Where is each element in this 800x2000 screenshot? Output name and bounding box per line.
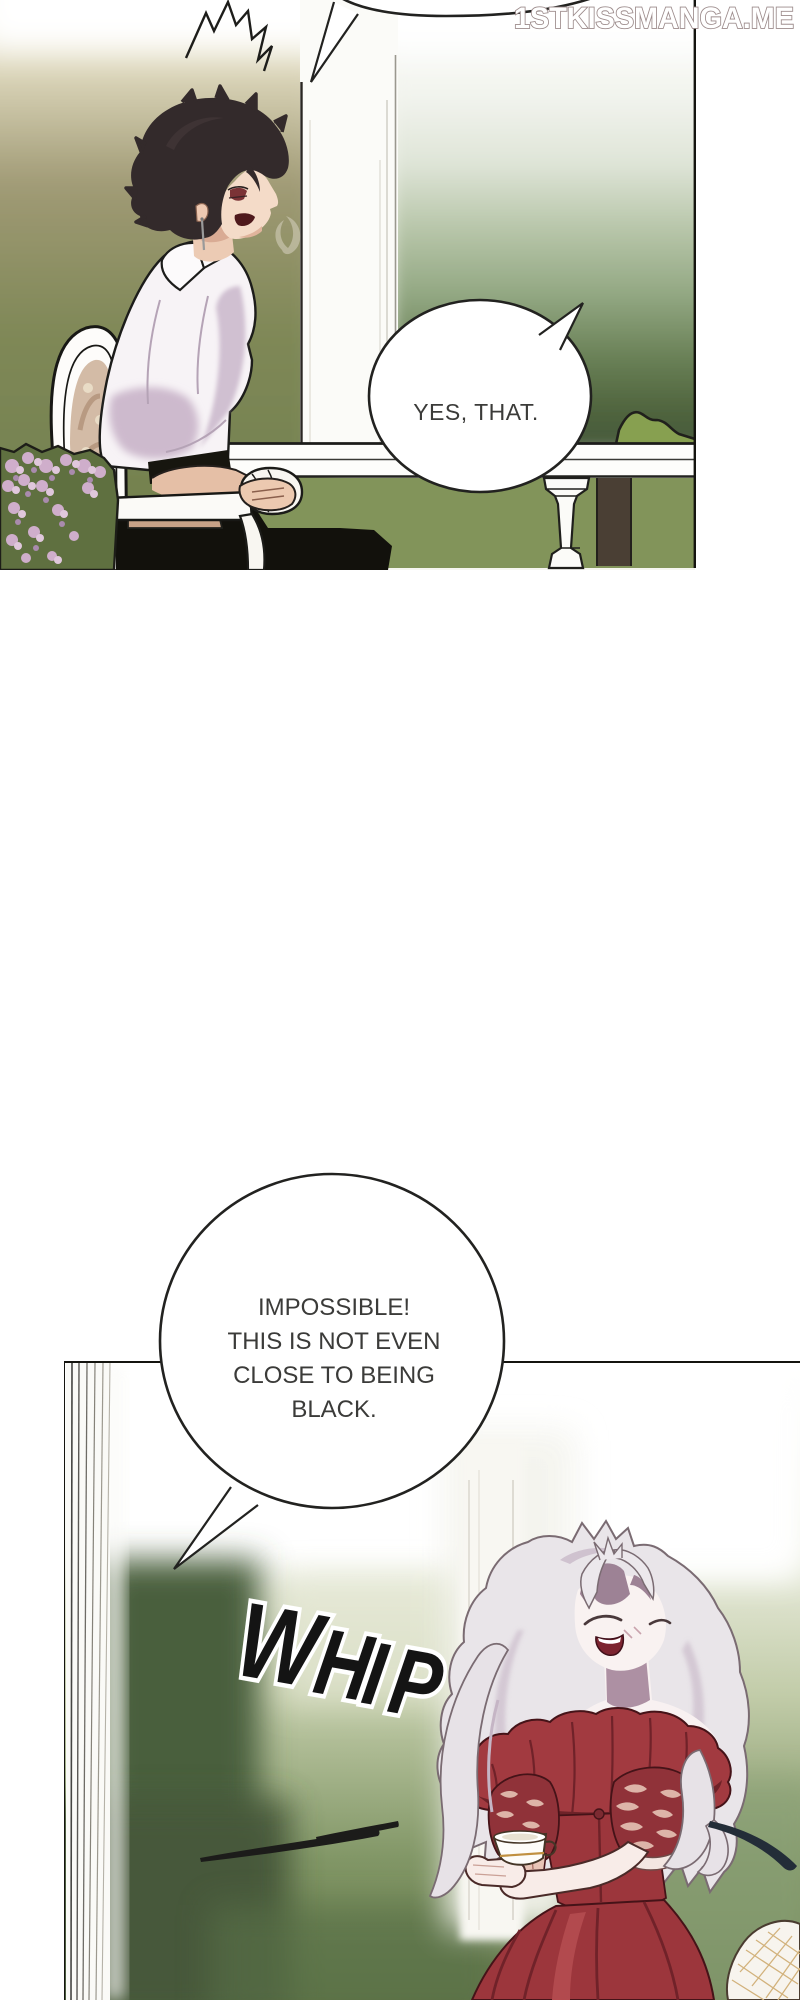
svg-text:YES, THAT.: YES, THAT.: [413, 399, 539, 425]
svg-text:IMPOSSIBLE!: IMPOSSIBLE!: [258, 1294, 410, 1321]
svg-text:CLOSE TO BEING: CLOSE TO BEING: [233, 1362, 435, 1389]
svg-text:BLACK.: BLACK.: [291, 1396, 376, 1423]
svg-text:1STKISSMANGA.ME: 1STKISSMANGA.ME: [514, 2, 794, 35]
svg-text:THIS IS NOT EVEN: THIS IS NOT EVEN: [228, 1328, 441, 1355]
